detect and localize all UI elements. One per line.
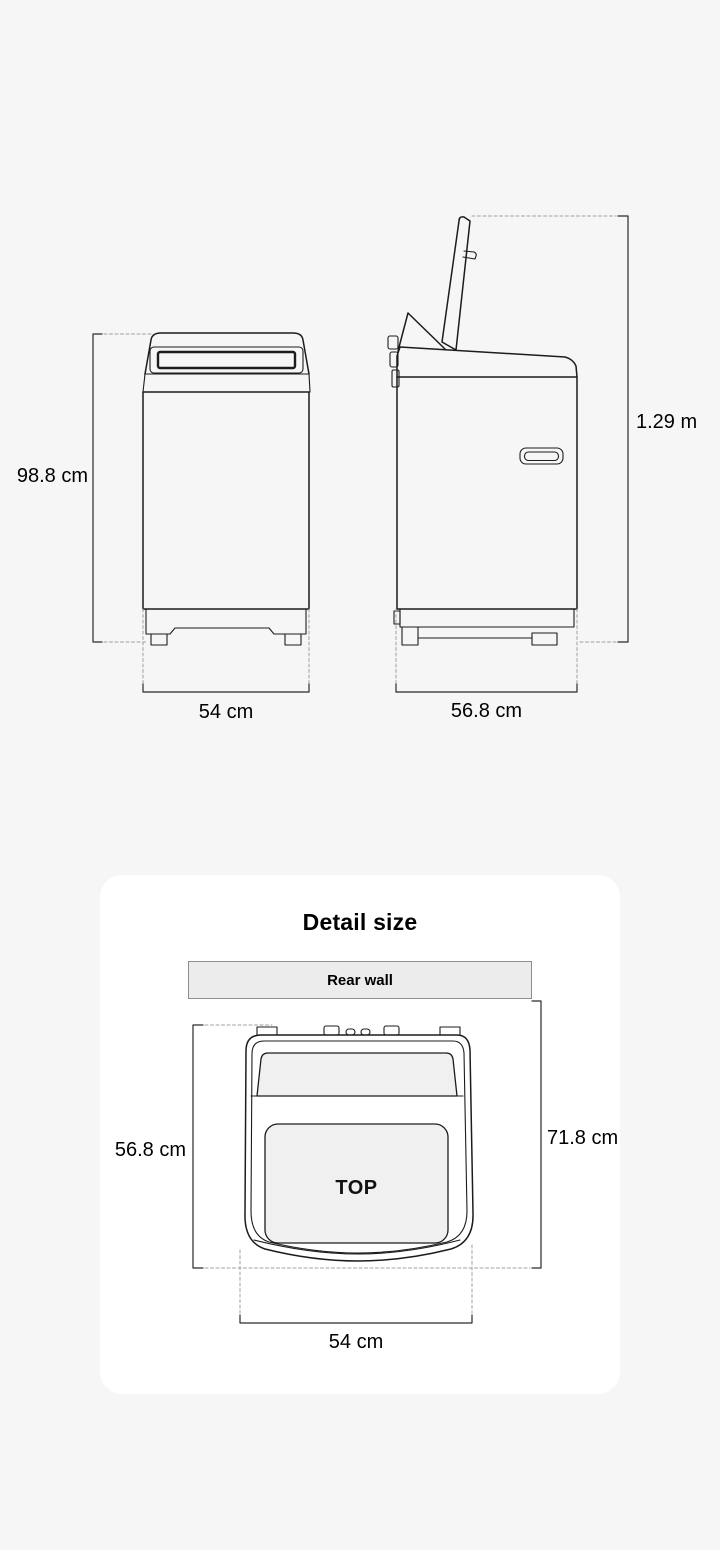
side-hinge-cover bbox=[398, 313, 445, 351]
side-rear-foot bbox=[532, 633, 557, 645]
detail-size-card bbox=[100, 875, 620, 1394]
front-height-label: 98.8 cm bbox=[6, 465, 88, 488]
front-left-foot bbox=[151, 634, 167, 645]
front-base bbox=[146, 609, 306, 634]
side-base bbox=[400, 609, 574, 627]
side-top-panel bbox=[397, 347, 577, 377]
front-lid-rim bbox=[150, 347, 303, 373]
front-height-bracket bbox=[93, 334, 152, 642]
detail-size-title: Detail size bbox=[100, 909, 620, 936]
side-open-height-bracket bbox=[472, 216, 628, 642]
washer-dimensions-page: 98.8 cm 1.29 m 54 cm 56.8 cm Detail size… bbox=[0, 0, 720, 1550]
side-depth-label: 56.8 cm bbox=[396, 700, 577, 723]
side-lid-latch bbox=[463, 251, 476, 259]
wall-clearance-label: 71.8 cm bbox=[547, 1127, 618, 1150]
side-depth-bracket bbox=[396, 609, 577, 692]
side-front-foot bbox=[402, 627, 418, 645]
rear-wall-label: Rear wall bbox=[188, 961, 532, 999]
side-body bbox=[397, 377, 577, 609]
front-width-bracket bbox=[143, 609, 309, 692]
front-right-foot bbox=[285, 634, 301, 645]
side-open-height-label: 1.29 m bbox=[636, 411, 697, 434]
topview-width-label: 54 cm bbox=[240, 1331, 472, 1354]
topview-depth-label: 56.8 cm bbox=[94, 1139, 186, 1162]
top-view-label: TOP bbox=[265, 1177, 448, 1200]
front-body bbox=[143, 392, 309, 609]
front-lid-window bbox=[158, 352, 295, 368]
side-open-lid bbox=[442, 217, 470, 350]
side-handle bbox=[520, 448, 563, 464]
front-view-drawing bbox=[143, 333, 310, 645]
side-view-drawing bbox=[388, 217, 577, 645]
front-width-label: 54 cm bbox=[143, 701, 309, 724]
